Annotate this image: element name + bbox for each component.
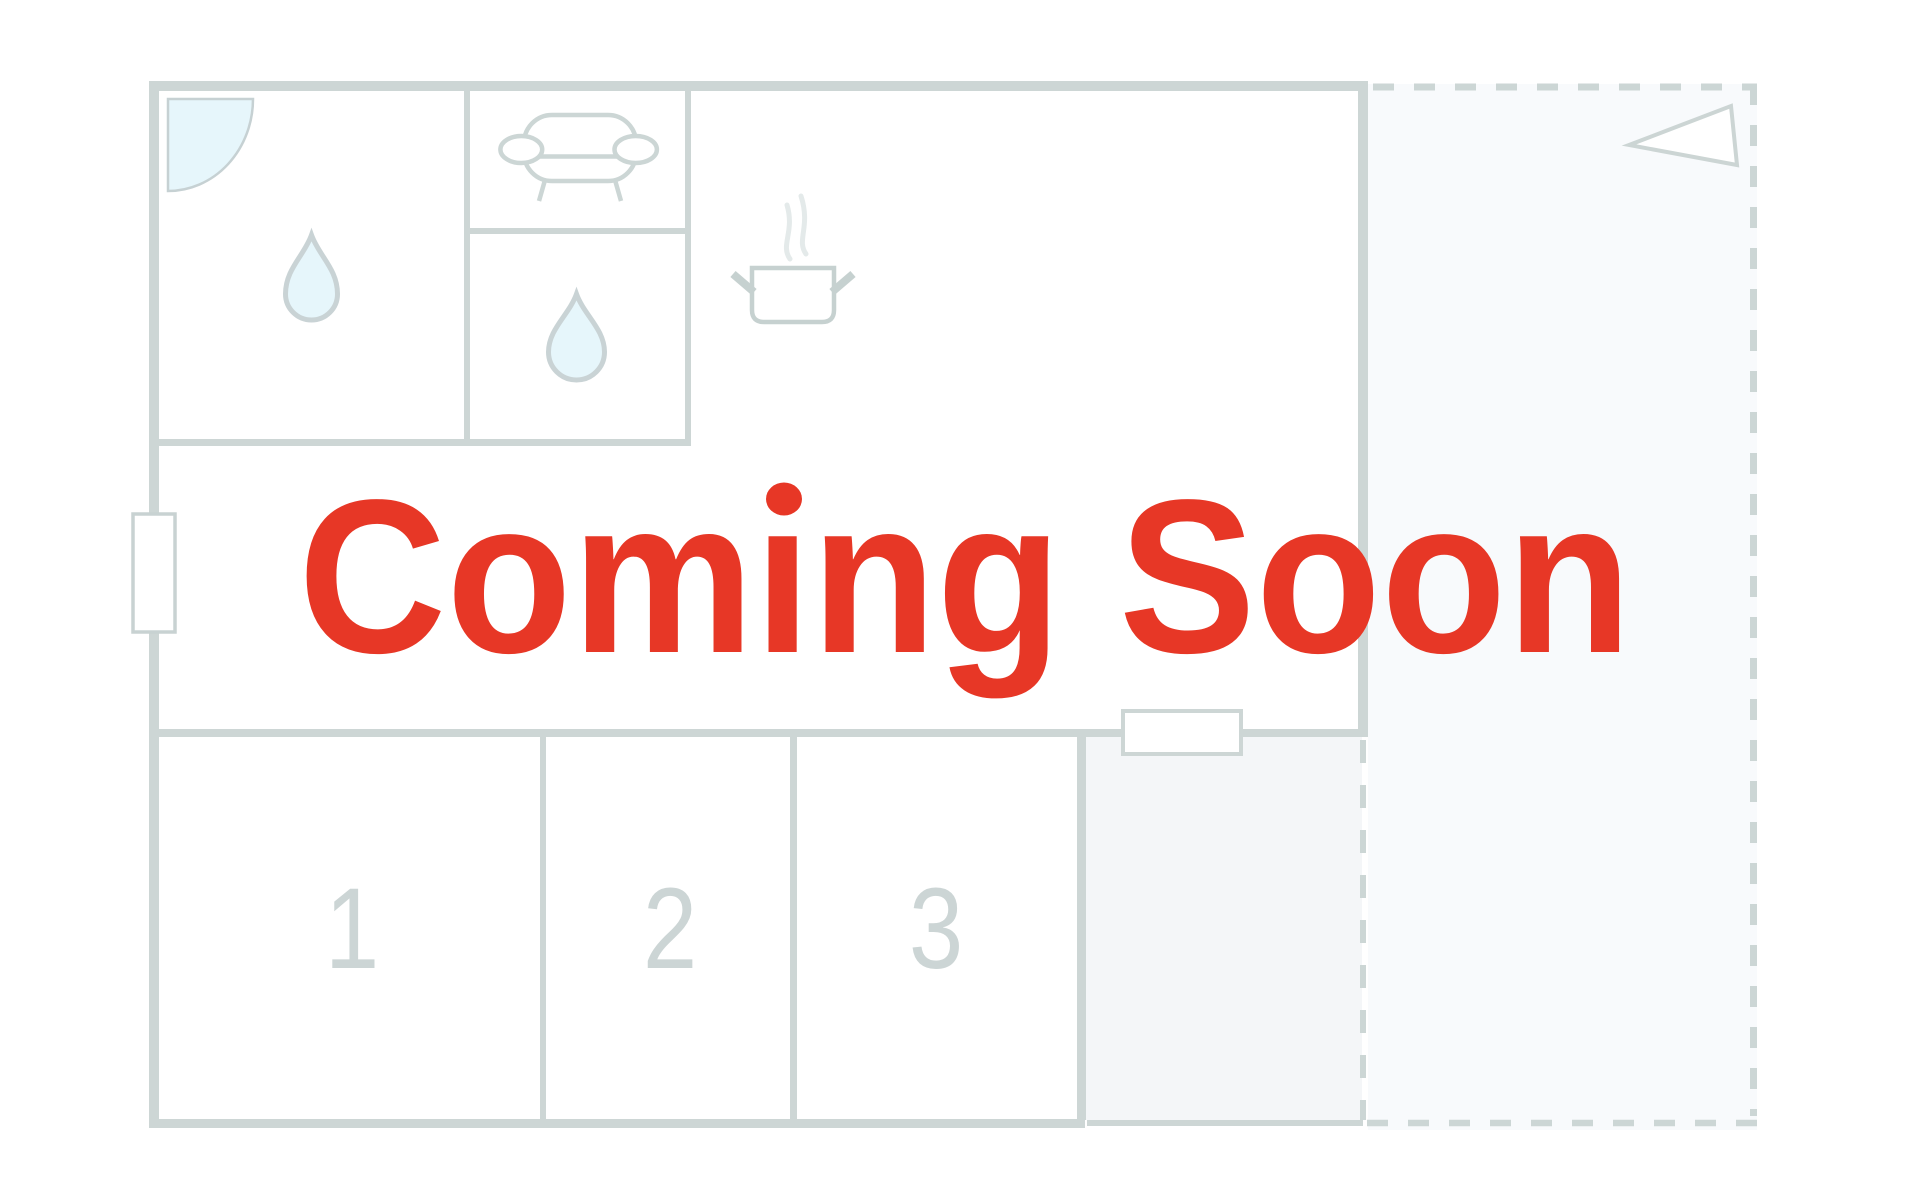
svg-text:1: 1 xyxy=(325,863,379,992)
svg-text:2: 2 xyxy=(643,863,697,992)
svg-text:3: 3 xyxy=(909,863,963,992)
svg-text:Coming Soon: Coming Soon xyxy=(298,454,1632,699)
